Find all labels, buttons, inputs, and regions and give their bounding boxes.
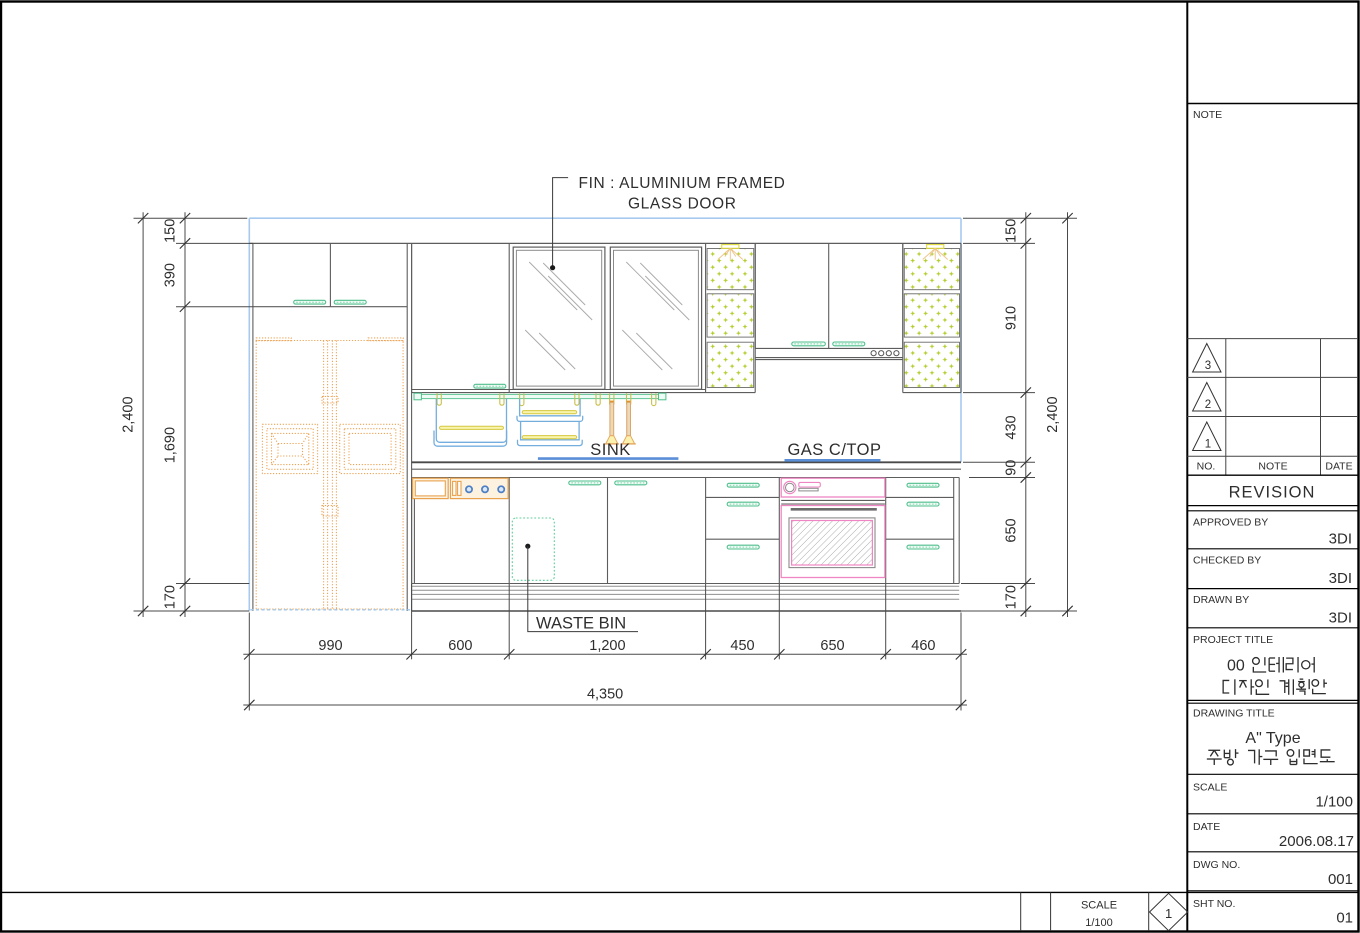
svg-text:2,400: 2,400 <box>121 396 137 432</box>
svg-text:SCALE: SCALE <box>1081 900 1117 912</box>
svg-text:NO.: NO. <box>1197 461 1216 473</box>
svg-text:450: 450 <box>730 638 754 654</box>
svg-text:DRAWING TITLE: DRAWING TITLE <box>1193 708 1275 720</box>
svg-text:3DI: 3DI <box>1329 530 1352 547</box>
svg-text:REVISION: REVISION <box>1229 484 1316 502</box>
svg-text:430: 430 <box>1003 415 1019 439</box>
svg-text:1: 1 <box>1205 439 1211 451</box>
svg-text:CHECKED BY: CHECKED BY <box>1193 554 1261 566</box>
svg-text:1: 1 <box>1165 906 1172 921</box>
svg-text:00: 00 <box>1227 658 1245 675</box>
svg-text:650: 650 <box>1003 518 1019 542</box>
svg-text:NOTE: NOTE <box>1193 109 1222 121</box>
svg-text:1,690: 1,690 <box>163 427 179 463</box>
svg-text:FIN : ALUMINIUM FRAMED: FIN : ALUMINIUM FRAMED <box>579 175 786 192</box>
svg-text:170: 170 <box>1003 585 1019 609</box>
svg-text:DWG NO.: DWG NO. <box>1193 859 1240 871</box>
svg-text:390: 390 <box>163 263 179 287</box>
svg-text:3DI: 3DI <box>1329 609 1352 626</box>
svg-text:2,400: 2,400 <box>1045 396 1061 432</box>
svg-text:3DI: 3DI <box>1329 570 1352 587</box>
svg-text:DATE: DATE <box>1325 461 1352 473</box>
svg-text:650: 650 <box>820 638 844 654</box>
svg-text:WASTE BIN: WASTE BIN <box>536 615 626 633</box>
svg-text:NOTE: NOTE <box>1258 461 1287 473</box>
svg-text:SHT NO.: SHT NO. <box>1193 898 1235 910</box>
svg-text:460: 460 <box>911 638 935 654</box>
svg-text:DRAWN BY: DRAWN BY <box>1193 594 1249 606</box>
svg-text:01: 01 <box>1336 910 1353 927</box>
svg-text:GAS C/TOP: GAS C/TOP <box>787 441 881 459</box>
svg-text:910: 910 <box>1003 306 1019 330</box>
svg-text:170: 170 <box>163 585 179 609</box>
svg-text:PROJECT TITLE: PROJECT TITLE <box>1193 634 1273 646</box>
svg-text:2006.08.17: 2006.08.17 <box>1279 833 1354 850</box>
svg-text:150: 150 <box>163 219 179 243</box>
svg-text:SINK: SINK <box>590 441 631 459</box>
svg-text:90: 90 <box>1003 460 1019 476</box>
svg-text:DATE: DATE <box>1193 821 1220 833</box>
svg-text:990: 990 <box>318 638 342 654</box>
svg-text:4,350: 4,350 <box>587 687 623 703</box>
svg-text:APPROVED BY: APPROVED BY <box>1193 516 1268 528</box>
svg-text:150: 150 <box>1003 219 1019 243</box>
svg-text:A" Type: A" Type <box>1245 730 1300 747</box>
svg-text:3: 3 <box>1205 360 1211 372</box>
svg-text:GLASS DOOR: GLASS DOOR <box>628 196 737 213</box>
svg-text:1/100: 1/100 <box>1085 917 1113 929</box>
svg-text:600: 600 <box>448 638 472 654</box>
svg-text:1/100: 1/100 <box>1315 794 1353 811</box>
svg-text:001: 001 <box>1328 871 1353 888</box>
svg-text:1,200: 1,200 <box>589 638 625 654</box>
svg-text:2: 2 <box>1205 399 1211 411</box>
svg-text:SCALE: SCALE <box>1193 782 1227 794</box>
